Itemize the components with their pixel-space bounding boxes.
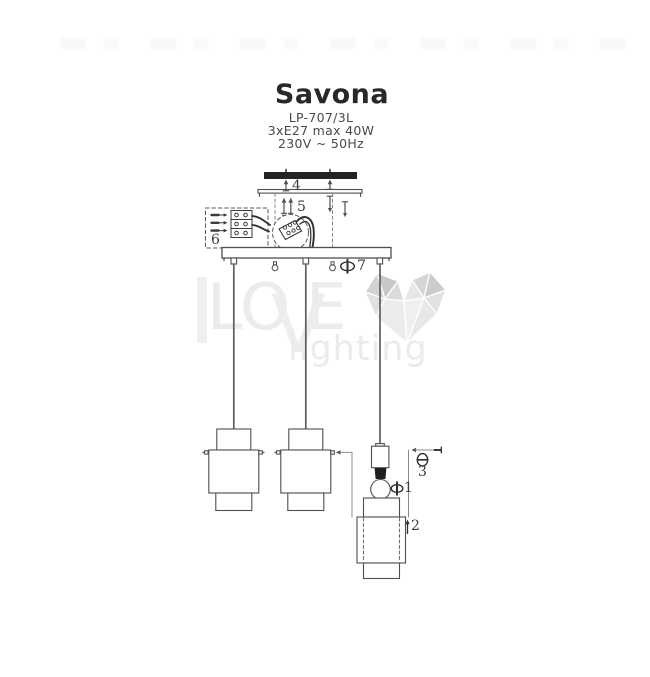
- screw-head-icon-1: [391, 482, 403, 495]
- light-bulb: [371, 480, 391, 500]
- part-label-5: 5: [297, 200, 306, 214]
- suspension-cords: [234, 264, 380, 446]
- part-label-2: 2: [411, 519, 420, 533]
- screw-head-icon-7: [341, 260, 355, 273]
- part-label-1: 1: [404, 481, 413, 495]
- ceiling-bracket: [264, 170, 357, 180]
- mounting-plate: [258, 190, 362, 197]
- part-label-3: 3: [418, 465, 427, 479]
- terminal-block-icon: [231, 211, 252, 238]
- part-label-4: 4: [292, 179, 301, 193]
- screw-insert-arrow-left: [336, 450, 352, 454]
- bulb-base: [375, 468, 387, 479]
- connector-detail-circle: [273, 215, 314, 251]
- instruction-sheet: Savona LP-707/3L 3xE27 max 40W 230V ~ 50…: [0, 0, 650, 677]
- lamp-socket: [372, 444, 389, 468]
- hanging-screw-icon: [327, 196, 347, 217]
- part-label-7: 7: [357, 259, 366, 273]
- part-label-6: 6: [211, 233, 220, 247]
- lamp-shade-1: [203, 429, 264, 511]
- assembly-diagram: [0, 0, 650, 677]
- lamp-shade-2: [275, 429, 335, 511]
- screw-insert-arrow-right: [412, 447, 442, 453]
- canopy-screw-icon: [281, 198, 293, 216]
- lamp-shade-3: [357, 498, 406, 579]
